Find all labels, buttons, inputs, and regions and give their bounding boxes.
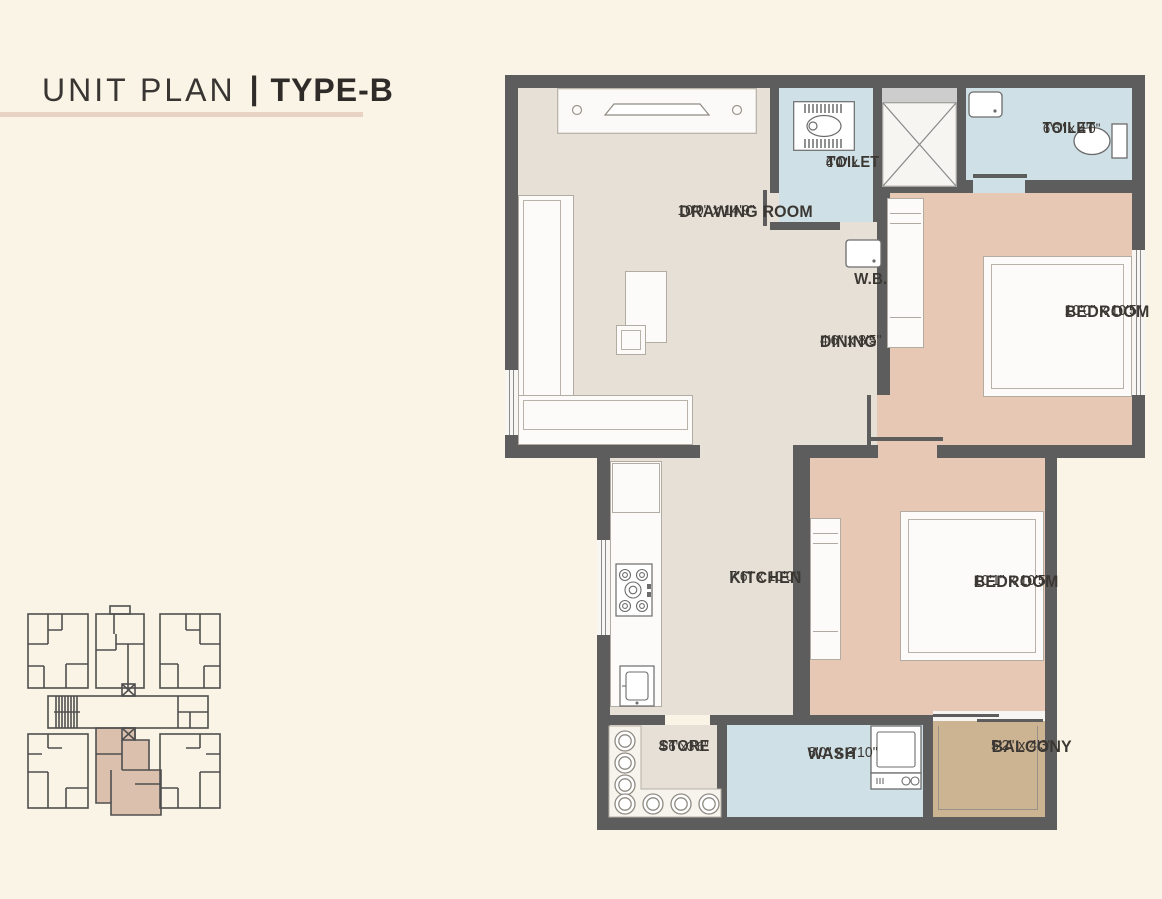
window [1132, 250, 1145, 395]
washbasin-icon [845, 239, 883, 269]
wardrobe [887, 198, 924, 348]
stove-icon [615, 563, 653, 617]
page: UNIT PLAN | TYPE-B [0, 0, 1162, 899]
duct-shaft [882, 102, 957, 187]
header: UNIT PLAN | TYPE-B [42, 70, 394, 110]
wall [505, 75, 1145, 88]
wall [957, 180, 973, 193]
wall [1045, 445, 1057, 830]
sink-icon [619, 665, 655, 707]
wall [770, 88, 779, 193]
key-plan [22, 604, 242, 829]
sofa-seat [523, 400, 688, 430]
page-title: UNIT PLAN [42, 72, 236, 109]
title-underline [0, 112, 363, 117]
sliding-door-bedroom-2 [871, 437, 943, 441]
side-table-top [621, 330, 641, 350]
fridge [612, 463, 660, 513]
washing-machine-icon [870, 725, 922, 791]
sliding-door-balcony [977, 719, 1043, 722]
title-separator: | [250, 70, 259, 107]
wall [1057, 445, 1145, 458]
floor-wb-nook [840, 222, 877, 230]
washbasin-icon [968, 91, 1004, 119]
door-bedroom-1 [867, 395, 871, 445]
floor-bedroom-2-doorway [878, 445, 937, 458]
wall [597, 715, 665, 725]
wall [1025, 180, 1132, 193]
floor-passage-kitchen [700, 445, 793, 458]
window [505, 370, 518, 435]
wall [770, 222, 840, 230]
window [597, 540, 610, 635]
floor-plan: DRAWING ROOM 10'0" x 14'9" TOILET 4'1" x… [505, 75, 1145, 830]
wall [518, 445, 700, 458]
door-toilet-2 [973, 174, 1027, 178]
wall [793, 445, 878, 458]
page-subtitle: TYPE-B [271, 72, 394, 109]
wall [923, 715, 933, 817]
shaft-top-band [882, 88, 957, 102]
floor-passage-dining [770, 193, 779, 445]
bed-mattress [991, 264, 1124, 389]
floor-toilet-2-doorway [973, 180, 1025, 193]
squat-toilet-icon [793, 101, 855, 151]
wardrobe [810, 518, 841, 660]
sliding-door-balcony [933, 714, 999, 717]
wall [957, 88, 966, 193]
wall [937, 445, 1057, 458]
key-plan-highlighted-unit [96, 728, 161, 815]
wall [717, 715, 925, 725]
tv-unit [557, 88, 757, 134]
